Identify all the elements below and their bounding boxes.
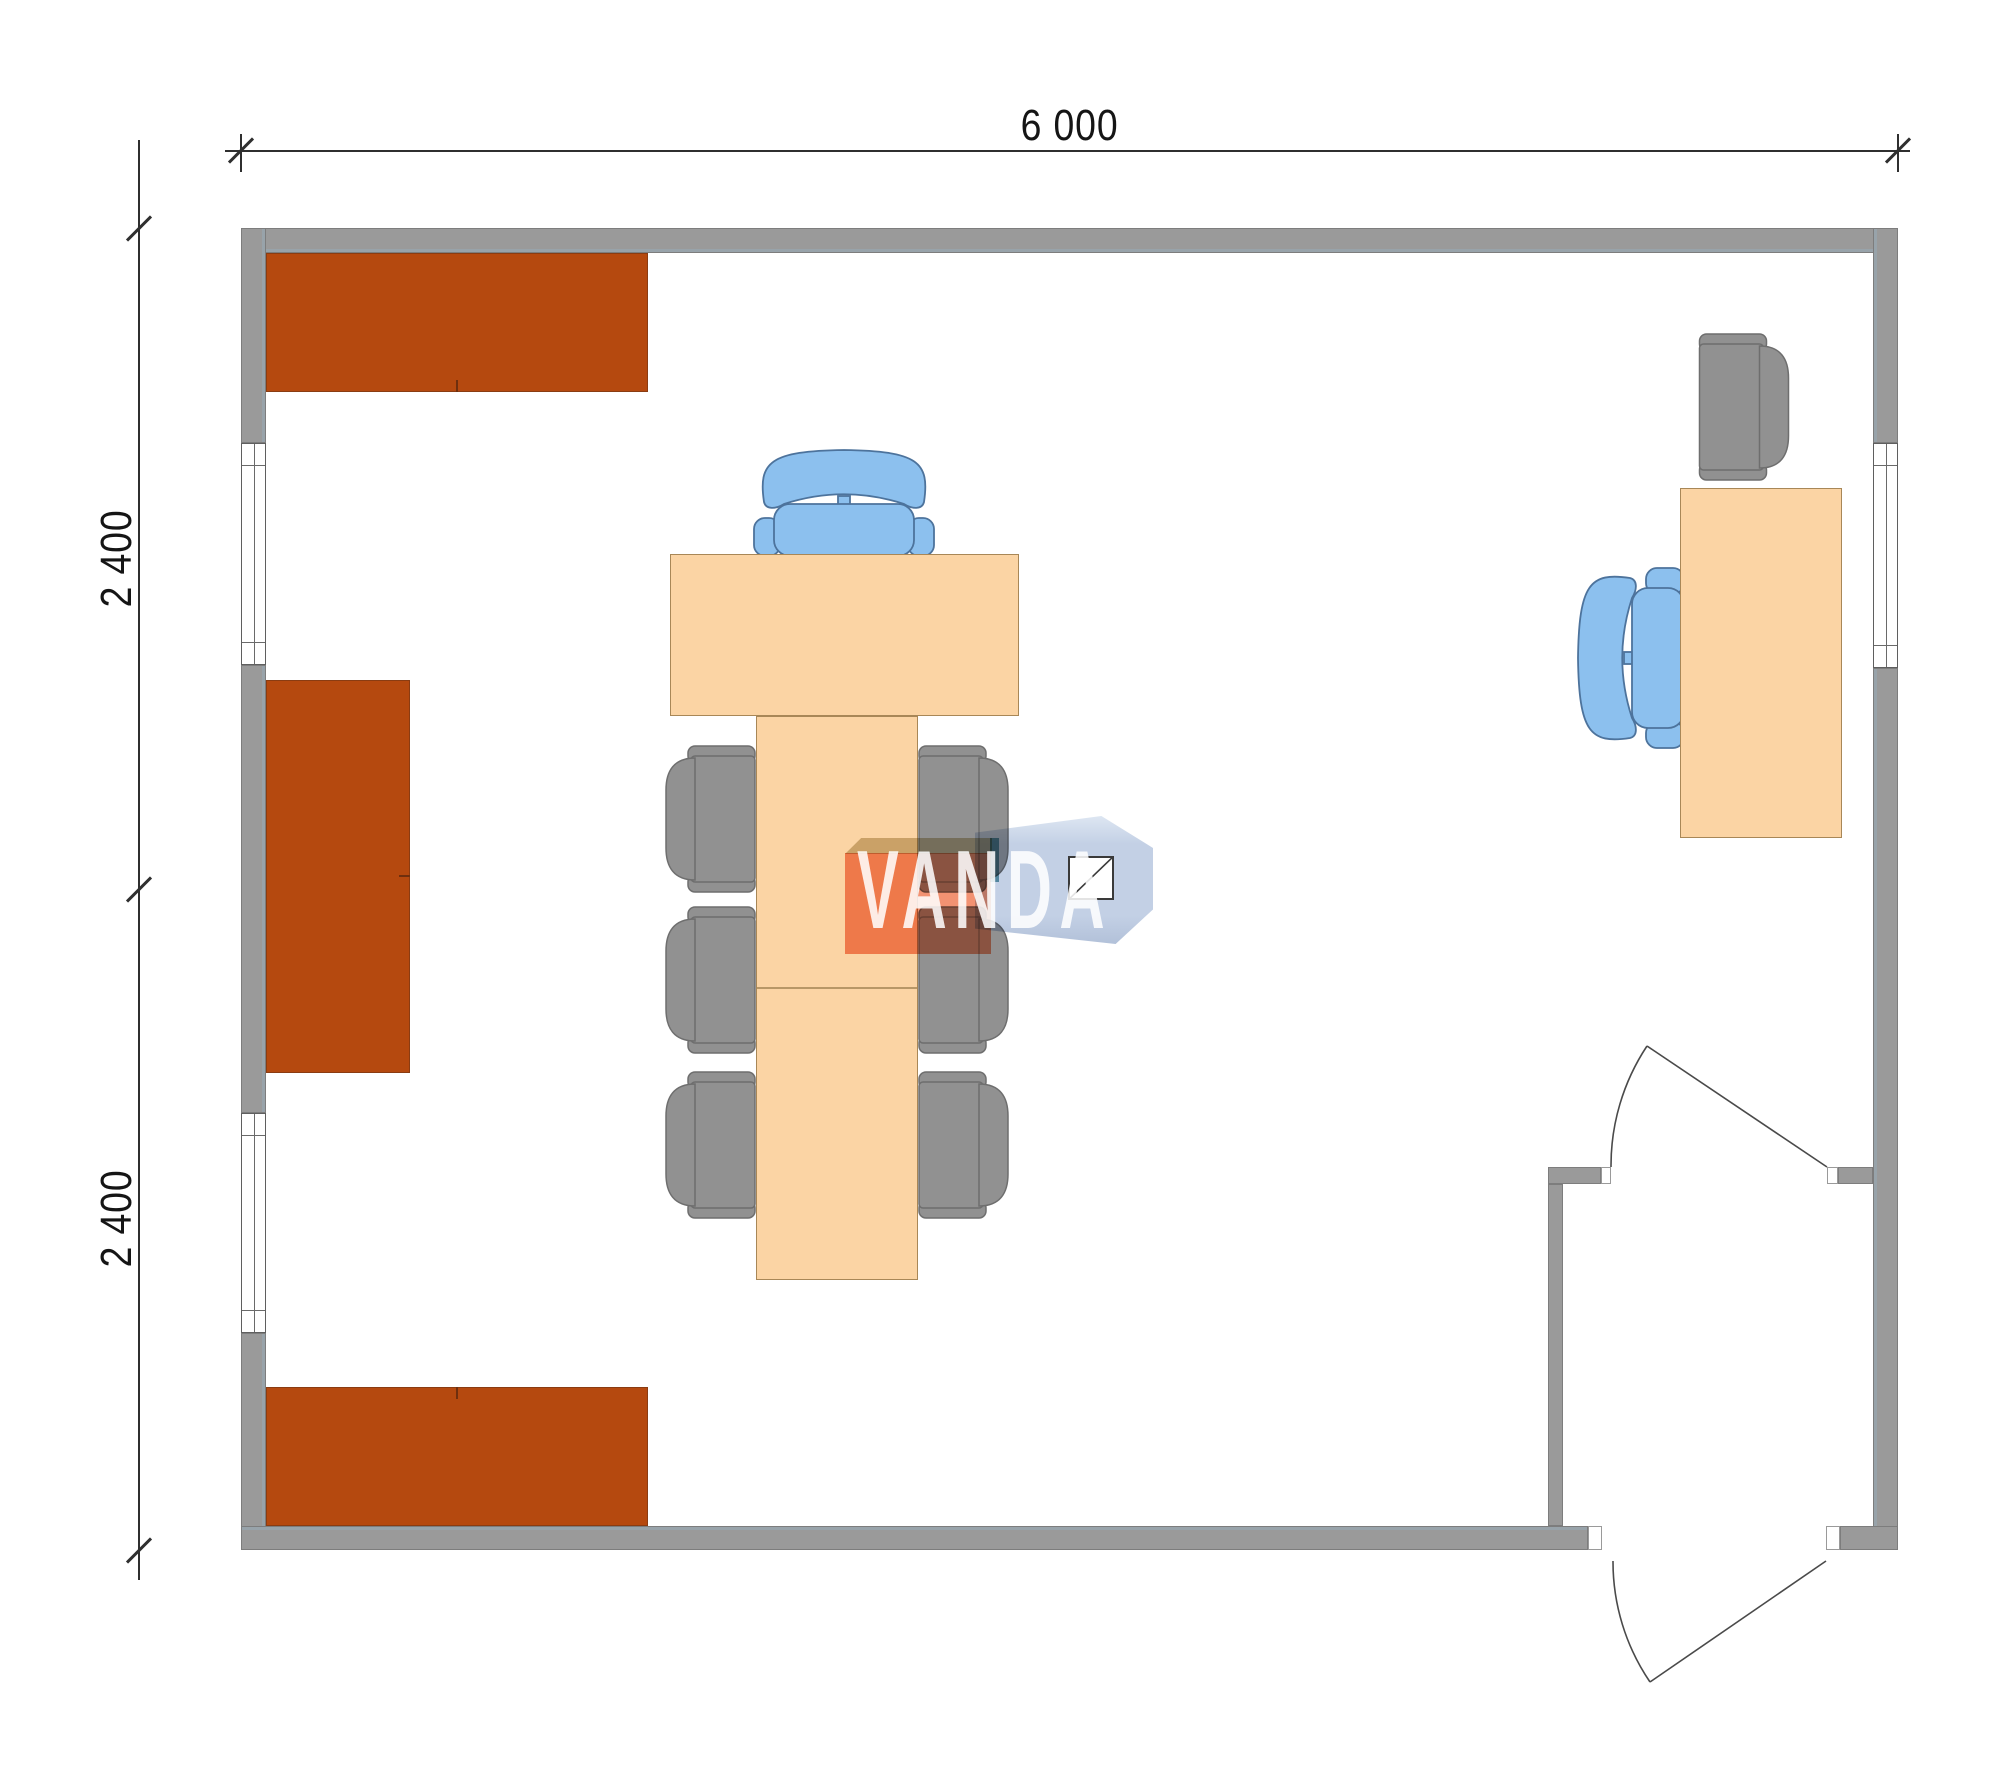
exterior-door-leaf bbox=[1650, 1561, 1826, 1682]
desk bbox=[1680, 488, 1842, 838]
meeting-chair-gray-left-3 bbox=[662, 1071, 757, 1219]
wall-bottom-segment-2 bbox=[1840, 1526, 1898, 1550]
wall-right-segment-1 bbox=[1873, 228, 1898, 443]
cabinet-bottom bbox=[266, 1387, 648, 1526]
partition-wall-horizontal-left bbox=[1548, 1167, 1601, 1184]
wall-bottom-segment-1 bbox=[241, 1526, 1588, 1550]
desk-chair-blue-wrapper bbox=[1574, 566, 1686, 750]
meeting-chair-blue-head bbox=[752, 446, 936, 558]
cabinet-top-seam bbox=[456, 380, 458, 392]
window-left-upper bbox=[241, 443, 266, 665]
top-dimension-label: 6 000 bbox=[970, 104, 1170, 148]
partition-wall-horizontal-right bbox=[1838, 1167, 1873, 1184]
exterior-door-jamb-right bbox=[1826, 1526, 1840, 1550]
meeting-table-stem-section bbox=[756, 716, 918, 1280]
watermark-brand-text: VANDA bbox=[857, 835, 1112, 946]
wall-left-segment-2 bbox=[241, 665, 266, 1113]
window-left-lower bbox=[241, 1113, 266, 1333]
visitor-armchair-gray bbox=[1665, 333, 1825, 481]
floor-plan: 6 000 2 400 2 400 bbox=[0, 0, 2000, 1773]
wall-left-segment-3 bbox=[241, 1333, 266, 1550]
meeting-table-seam bbox=[757, 987, 917, 989]
desk-chair-blue bbox=[1574, 566, 1686, 750]
wall-top bbox=[241, 228, 1898, 253]
meeting-chair-gray-left-2 bbox=[662, 906, 757, 1054]
meeting-chair-gray-right-3 bbox=[917, 1071, 1012, 1219]
top-dimension-line bbox=[225, 150, 1910, 152]
cabinet-left-seam bbox=[399, 875, 410, 877]
partition-wall-vertical bbox=[1548, 1184, 1563, 1526]
left-lower-dimension-label: 2 400 bbox=[95, 1118, 139, 1318]
exterior-door-jamb-left bbox=[1588, 1526, 1602, 1550]
interior-door-leaf bbox=[1647, 1046, 1827, 1167]
cabinet-left bbox=[266, 680, 410, 1073]
interior-door-swing-arc bbox=[1611, 1046, 1647, 1167]
wall-right-segment-2 bbox=[1873, 668, 1898, 1550]
meeting-chair-gray-left-1 bbox=[662, 745, 757, 893]
cabinet-top bbox=[266, 253, 648, 392]
window-right bbox=[1873, 443, 1898, 668]
cabinet-bottom-seam bbox=[456, 1387, 458, 1399]
left-dimension-line bbox=[138, 140, 140, 1580]
wall-left-segment-1 bbox=[241, 228, 266, 443]
left-upper-dimension-label: 2 400 bbox=[95, 458, 139, 658]
interior-door-jamb-left bbox=[1601, 1167, 1611, 1184]
interior-door-jamb-right bbox=[1827, 1167, 1838, 1184]
meeting-table-head-section bbox=[670, 554, 1019, 716]
exterior-door-swing-arc bbox=[1613, 1561, 1650, 1682]
